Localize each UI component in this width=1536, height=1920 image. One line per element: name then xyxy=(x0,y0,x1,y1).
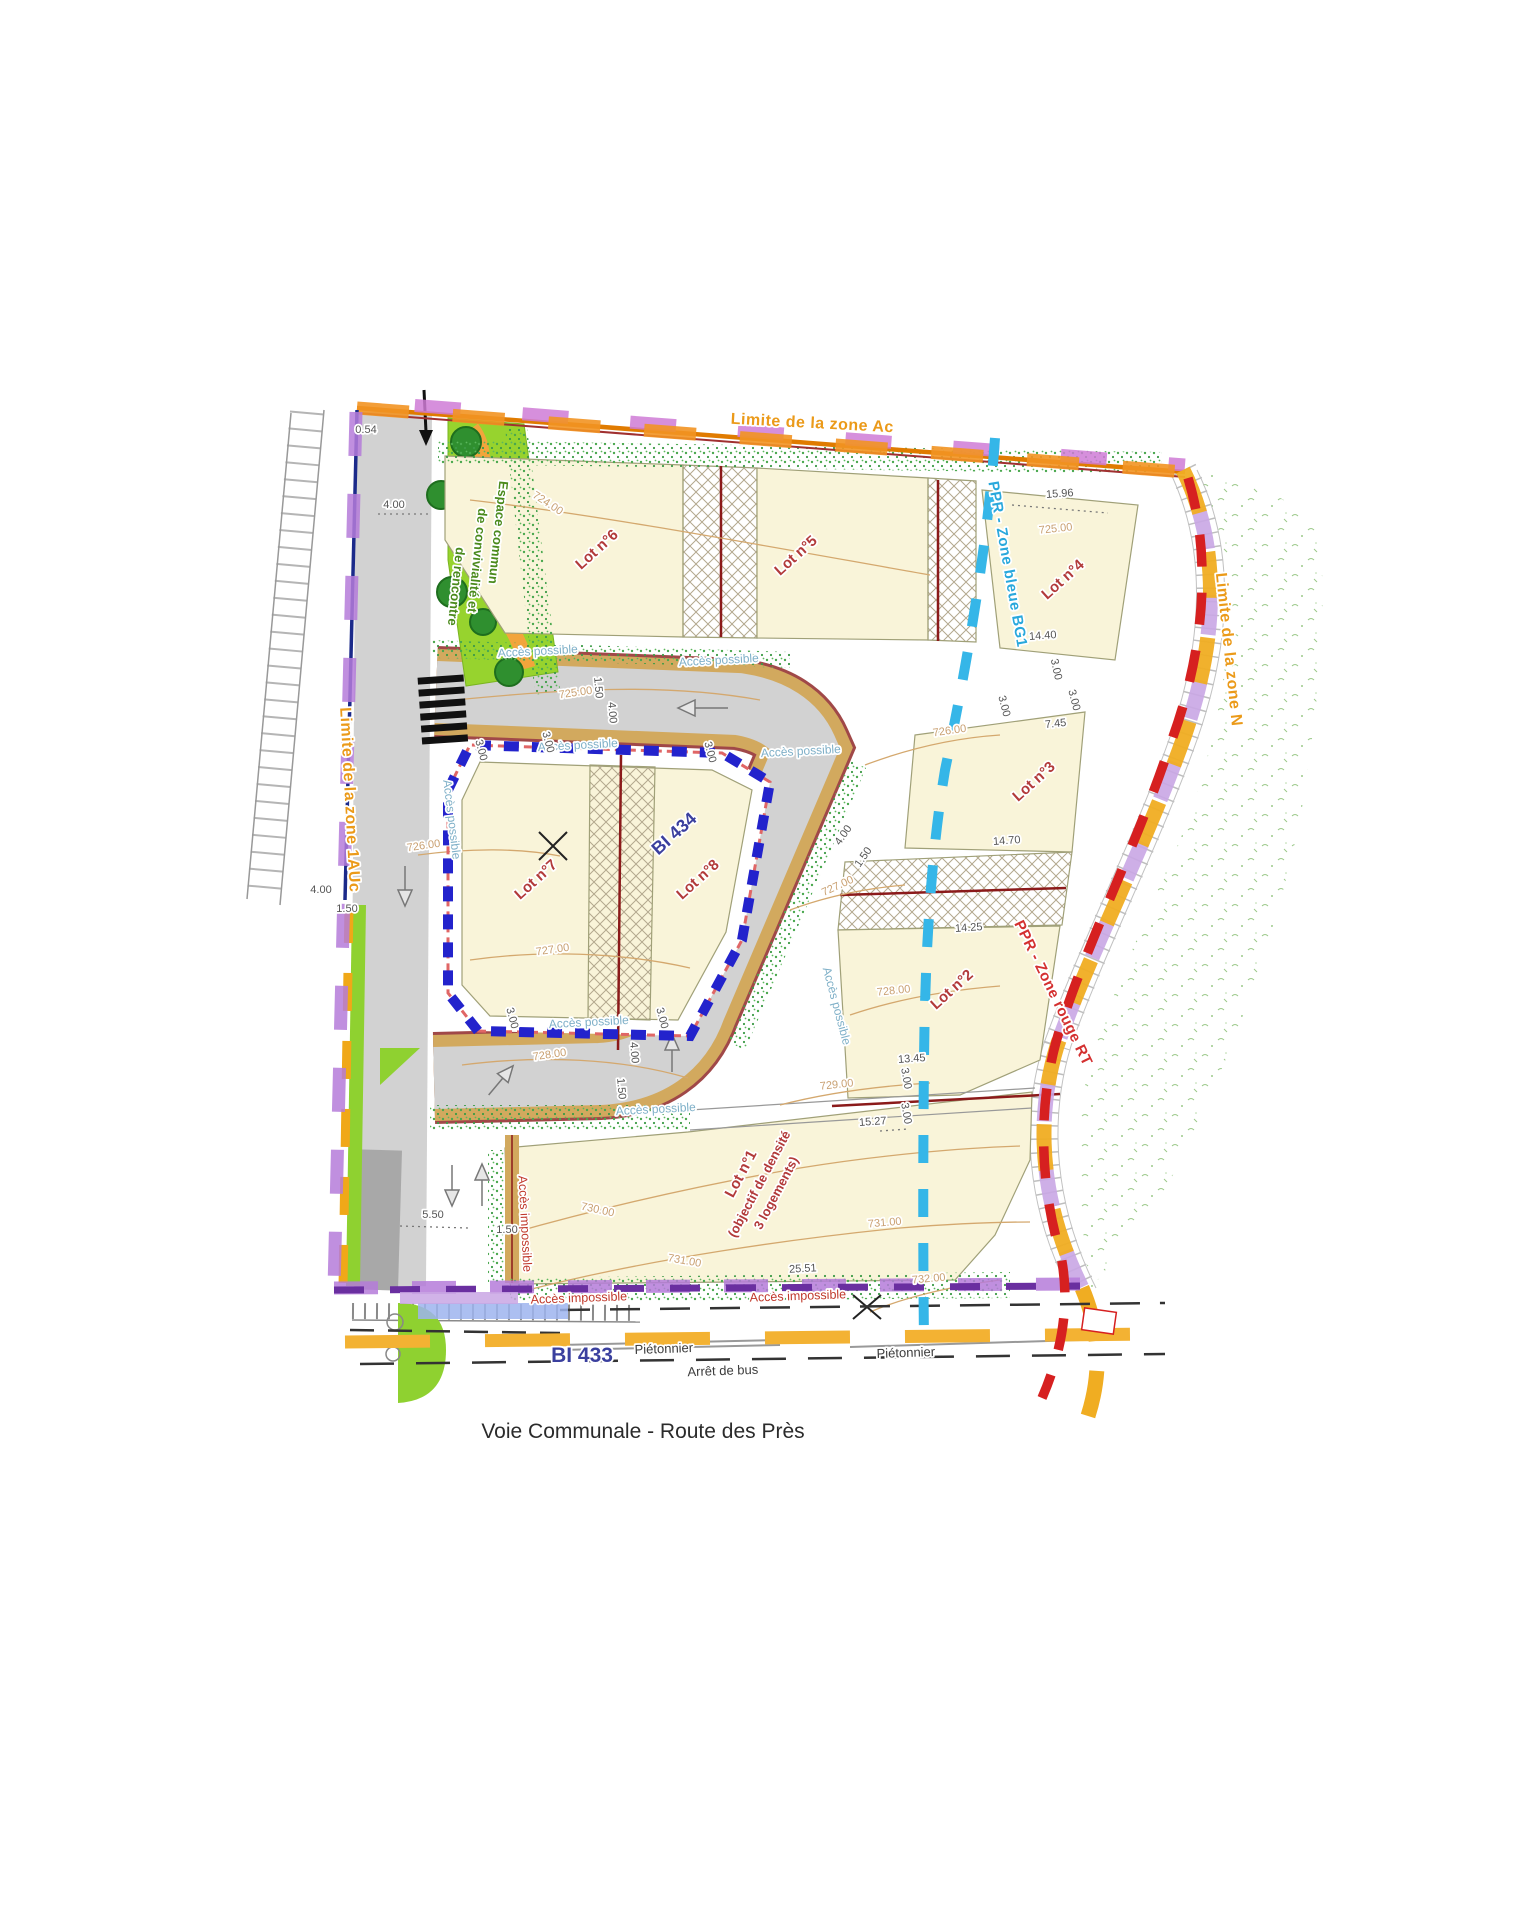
site-plan-canvas: Limite de la zone AcLimite de la zone NL… xyxy=(0,0,1536,1920)
dim-3-00-b: 3.00 xyxy=(995,694,1012,718)
dim-4-00-e: 4.00 xyxy=(605,702,619,724)
dim-5-50: 5.50 xyxy=(422,1209,443,1221)
acces-impossible-3: Accès impossible xyxy=(749,1287,846,1304)
dim-14-70: 14.70 xyxy=(993,834,1021,848)
dim-1-50-b: 1.50 xyxy=(336,903,357,915)
pietonnier-right: Piétonnier xyxy=(876,1344,936,1361)
bi-433: BI 433 xyxy=(551,1344,613,1367)
dim-4-00-b: 4.00 xyxy=(310,884,331,896)
dim-14-40: 14.40 xyxy=(1029,629,1057,643)
dim-15-27: 15.27 xyxy=(859,1115,887,1129)
dim-14-25: 14.25 xyxy=(955,921,983,935)
dim-13-45: 13.45 xyxy=(898,1052,926,1066)
arret-de-bus: Arrêt de bus xyxy=(687,1362,759,1379)
lot-5-parcel xyxy=(757,468,928,640)
dim-4-00-d: 4.00 xyxy=(627,1042,641,1064)
dim-15-96: 15.96 xyxy=(1046,487,1074,501)
road-caption: Voie Communale - Route des Près xyxy=(393,1420,893,1444)
left-ladder-strip xyxy=(247,410,324,905)
dim-0-54: 0.54 xyxy=(355,424,376,436)
acces-impossible-2: Accès impossible xyxy=(530,1289,627,1306)
dim-7-45: 7.45 xyxy=(1044,717,1067,731)
dim-3-00-a: 3.00 xyxy=(1048,658,1064,681)
dim-4-00-a: 4.00 xyxy=(383,499,404,511)
site-plan-page: { "title": "Voie Communale - Route des P… xyxy=(0,0,1536,1920)
dim-3-00-c: 3.00 xyxy=(1065,688,1082,712)
dim-1-50-d: 1.50 xyxy=(614,1078,628,1100)
dim-1-50-e: 1.50 xyxy=(496,1224,517,1236)
pietonnier-left: Piétonnier xyxy=(634,1340,694,1357)
dim-25-51: 25.51 xyxy=(789,1262,817,1275)
dim-1-50-f: 1.50 xyxy=(591,677,605,699)
